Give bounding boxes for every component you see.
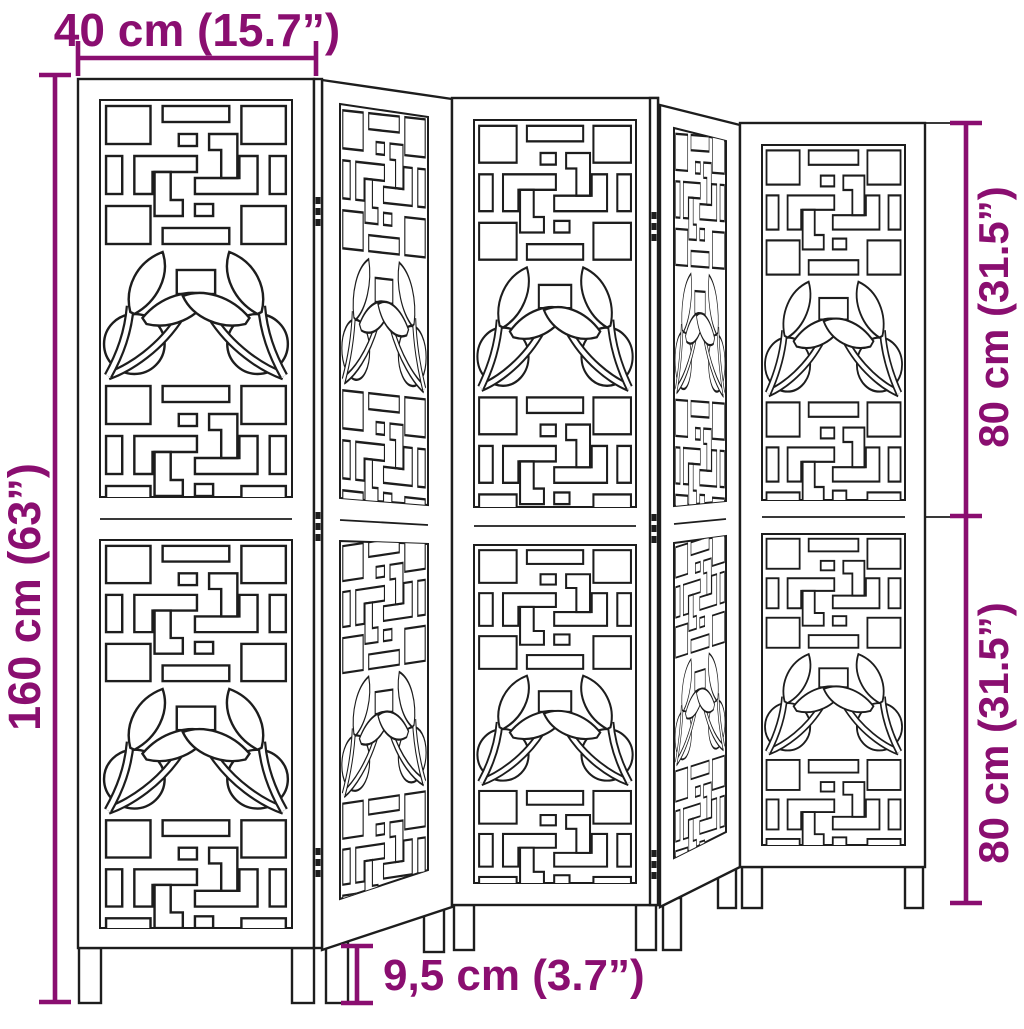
dim-right-heights: 80 cm (31.5”) 80 cm (31.5”) bbox=[950, 123, 1017, 903]
panel-1 bbox=[78, 79, 314, 1024]
dim-right-lower-label: 80 cm (31.5”) bbox=[970, 602, 1017, 863]
dim-top-width-label: 40 cm (15.7”) bbox=[54, 4, 340, 56]
panel-4-leg-left bbox=[663, 898, 681, 950]
panel-5 bbox=[740, 123, 950, 973]
dim-left-height-label: 160 cm (63”) bbox=[0, 463, 50, 731]
dim-top-width: 40 cm (15.7”) bbox=[54, 4, 340, 76]
panel-5-leg-right bbox=[905, 867, 923, 908]
panel-3-leg-right bbox=[636, 905, 656, 950]
room-divider-drawing: 40 cm (15.7”) 160 cm (63”) 80 cm (31.5”)… bbox=[0, 0, 1024, 1024]
panel-5-leg-left bbox=[742, 867, 762, 908]
panel-1-leg-left bbox=[79, 948, 101, 1003]
dim-right-upper-label: 80 cm (31.5”) bbox=[970, 186, 1017, 447]
dimension-diagram: 40 cm (15.7”) 160 cm (63”) 80 cm (31.5”)… bbox=[0, 0, 1024, 1024]
panel-2-leg-left bbox=[326, 942, 348, 1003]
hinge-strip-1 bbox=[314, 79, 322, 948]
dim-left-height: 160 cm (63”) bbox=[0, 75, 71, 1002]
panel-1-leg-right bbox=[292, 948, 314, 1003]
dim-leg-height: 9,5 cm (3.7”) bbox=[341, 946, 645, 1003]
panel-4 bbox=[660, 105, 740, 987]
panel-3-leg-left bbox=[454, 905, 474, 950]
panel-2 bbox=[322, 80, 452, 1024]
hinge-strip-2 bbox=[650, 98, 658, 905]
dim-leg-height-label: 9,5 cm (3.7”) bbox=[383, 951, 645, 1000]
panel-3 bbox=[452, 98, 658, 1023]
